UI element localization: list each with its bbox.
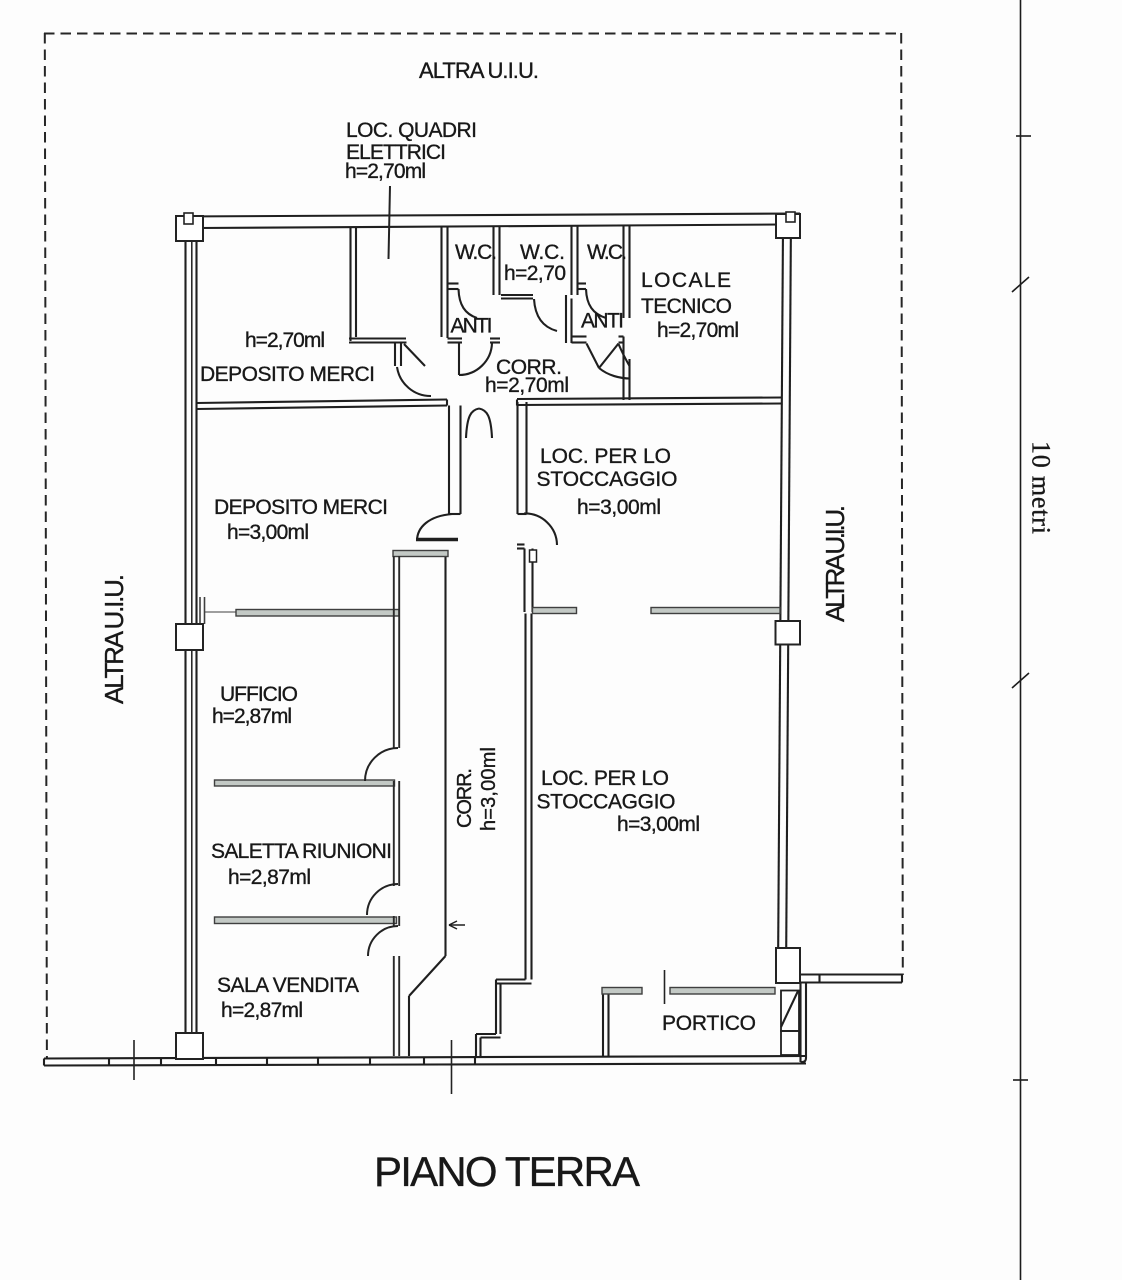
svg-text:W.C.: W.C. xyxy=(520,241,565,264)
svg-text:STOCCAGGIO: STOCCAGGIO xyxy=(537,468,678,491)
svg-text:ALTRA U.I.U.: ALTRA U.I.U. xyxy=(419,58,539,83)
svg-text:h=2,87ml: h=2,87ml xyxy=(228,866,311,889)
svg-text:h=2,87ml: h=2,87ml xyxy=(212,705,292,728)
svg-text:STOCCAGGIO: STOCCAGGIO xyxy=(537,791,676,814)
svg-text:LOCALE: LOCALE xyxy=(641,269,731,292)
svg-text:10 metri: 10 metri xyxy=(1027,441,1056,534)
svg-text:DEPOSITO MERCI: DEPOSITO MERCI xyxy=(214,496,388,519)
svg-text:PORTICO: PORTICO xyxy=(662,1012,756,1035)
svg-text:TECNICO: TECNICO xyxy=(641,295,732,318)
svg-text:h=2,70ml: h=2,70ml xyxy=(485,374,569,397)
svg-text:h=2,70: h=2,70 xyxy=(504,262,566,285)
svg-text:h=3,00ml: h=3,00ml xyxy=(227,521,309,544)
svg-text:ALTRA U.I.U.: ALTRA U.I.U. xyxy=(99,574,129,704)
svg-text:h=3,00ml: h=3,00ml xyxy=(577,496,661,519)
svg-text:ALTRA U.I.U.: ALTRA U.I.U. xyxy=(820,505,850,622)
svg-text:LOC. QUADRI: LOC. QUADRI xyxy=(346,119,477,142)
svg-text:h=2,70ml: h=2,70ml xyxy=(345,160,426,183)
svg-text:W.C.: W.C. xyxy=(587,241,627,264)
svg-text:h=3,00ml: h=3,00ml xyxy=(478,747,500,831)
svg-text:SALA VENDITA: SALA VENDITA xyxy=(217,974,359,997)
svg-text:h=2,70ml: h=2,70ml xyxy=(657,319,739,342)
svg-text:LOC. PER LO: LOC. PER LO xyxy=(540,445,671,468)
svg-text:CORR.: CORR. xyxy=(454,768,476,828)
svg-text:h=3,00ml: h=3,00ml xyxy=(617,813,700,836)
svg-text:W.C.: W.C. xyxy=(455,241,497,264)
svg-text:LOC. PER LO: LOC. PER LO xyxy=(541,767,669,790)
svg-text:h=2,87ml: h=2,87ml xyxy=(221,999,303,1022)
svg-text:UFFICIO: UFFICIO xyxy=(220,683,298,706)
svg-text:h=2,70ml: h=2,70ml xyxy=(245,329,325,352)
svg-text:DEPOSITO MERCI: DEPOSITO MERCI xyxy=(200,363,375,386)
svg-text:ANTI: ANTI xyxy=(451,315,493,338)
svg-text:PIANO TERRA: PIANO TERRA xyxy=(374,1148,640,1195)
svg-text:SALETTA RIUNIONI: SALETTA RIUNIONI xyxy=(211,840,392,863)
svg-text:ANTI: ANTI xyxy=(581,310,624,333)
